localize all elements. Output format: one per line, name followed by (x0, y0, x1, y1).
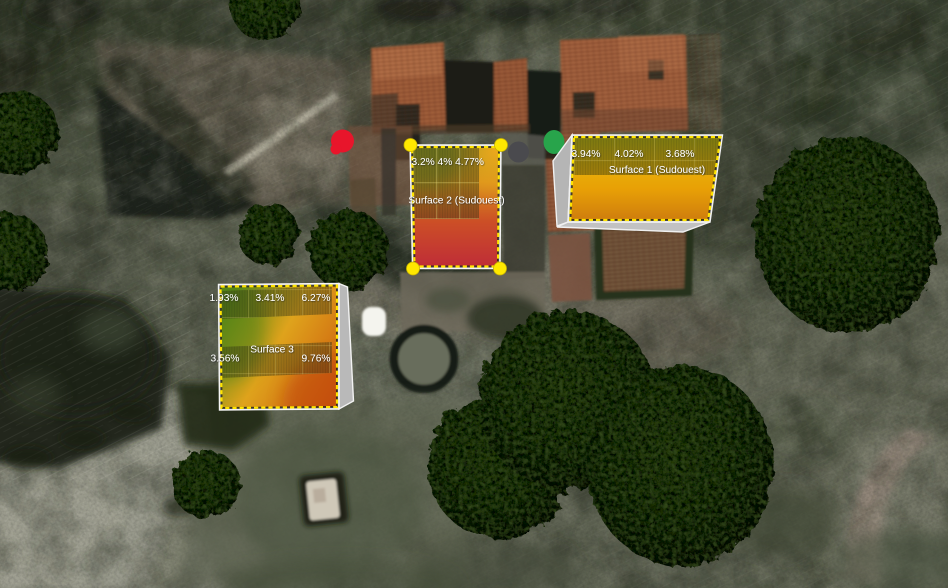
svg-text:Surface 3: Surface 3 (250, 345, 294, 356)
svg-text:Surface 1 (Sudouest): Surface 1 (Sudouest) (609, 165, 705, 176)
svg-text:1.93%: 1.93% (210, 293, 239, 304)
svg-text:3.68%: 3.68% (666, 149, 695, 160)
svg-text:3.41%: 3.41% (256, 293, 285, 304)
svg-text:3.56%: 3.56% (211, 354, 240, 365)
svg-text:9.76%: 9.76% (302, 354, 331, 365)
svg-text:3.2% 4% 4.77%: 3.2% 4% 4.77% (412, 157, 485, 168)
svg-text:6.27%: 6.27% (302, 293, 331, 304)
svg-text:4.02%: 4.02% (615, 149, 644, 160)
svg-text:Surface 2 (Sudouest): Surface 2 (Sudouest) (408, 196, 504, 207)
svg-text:3.94%: 3.94% (572, 149, 601, 160)
